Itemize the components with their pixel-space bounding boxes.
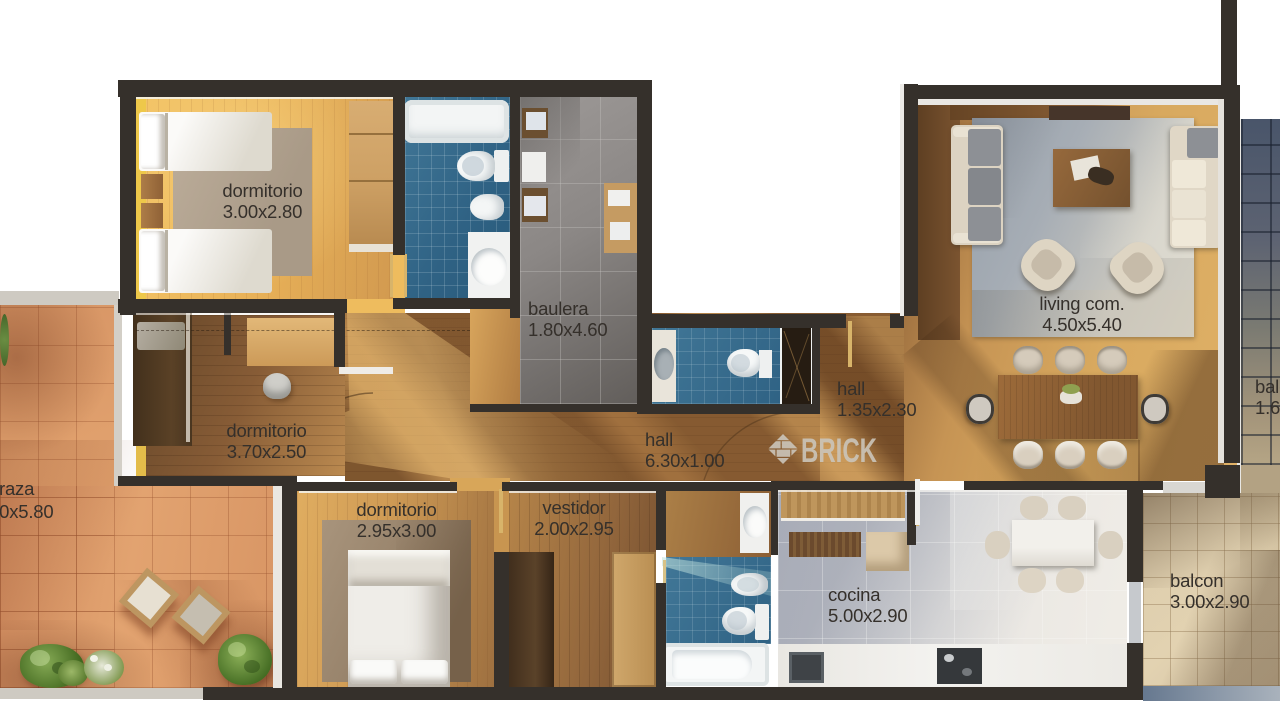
svg-text:BRICK: BRICK — [801, 432, 877, 468]
